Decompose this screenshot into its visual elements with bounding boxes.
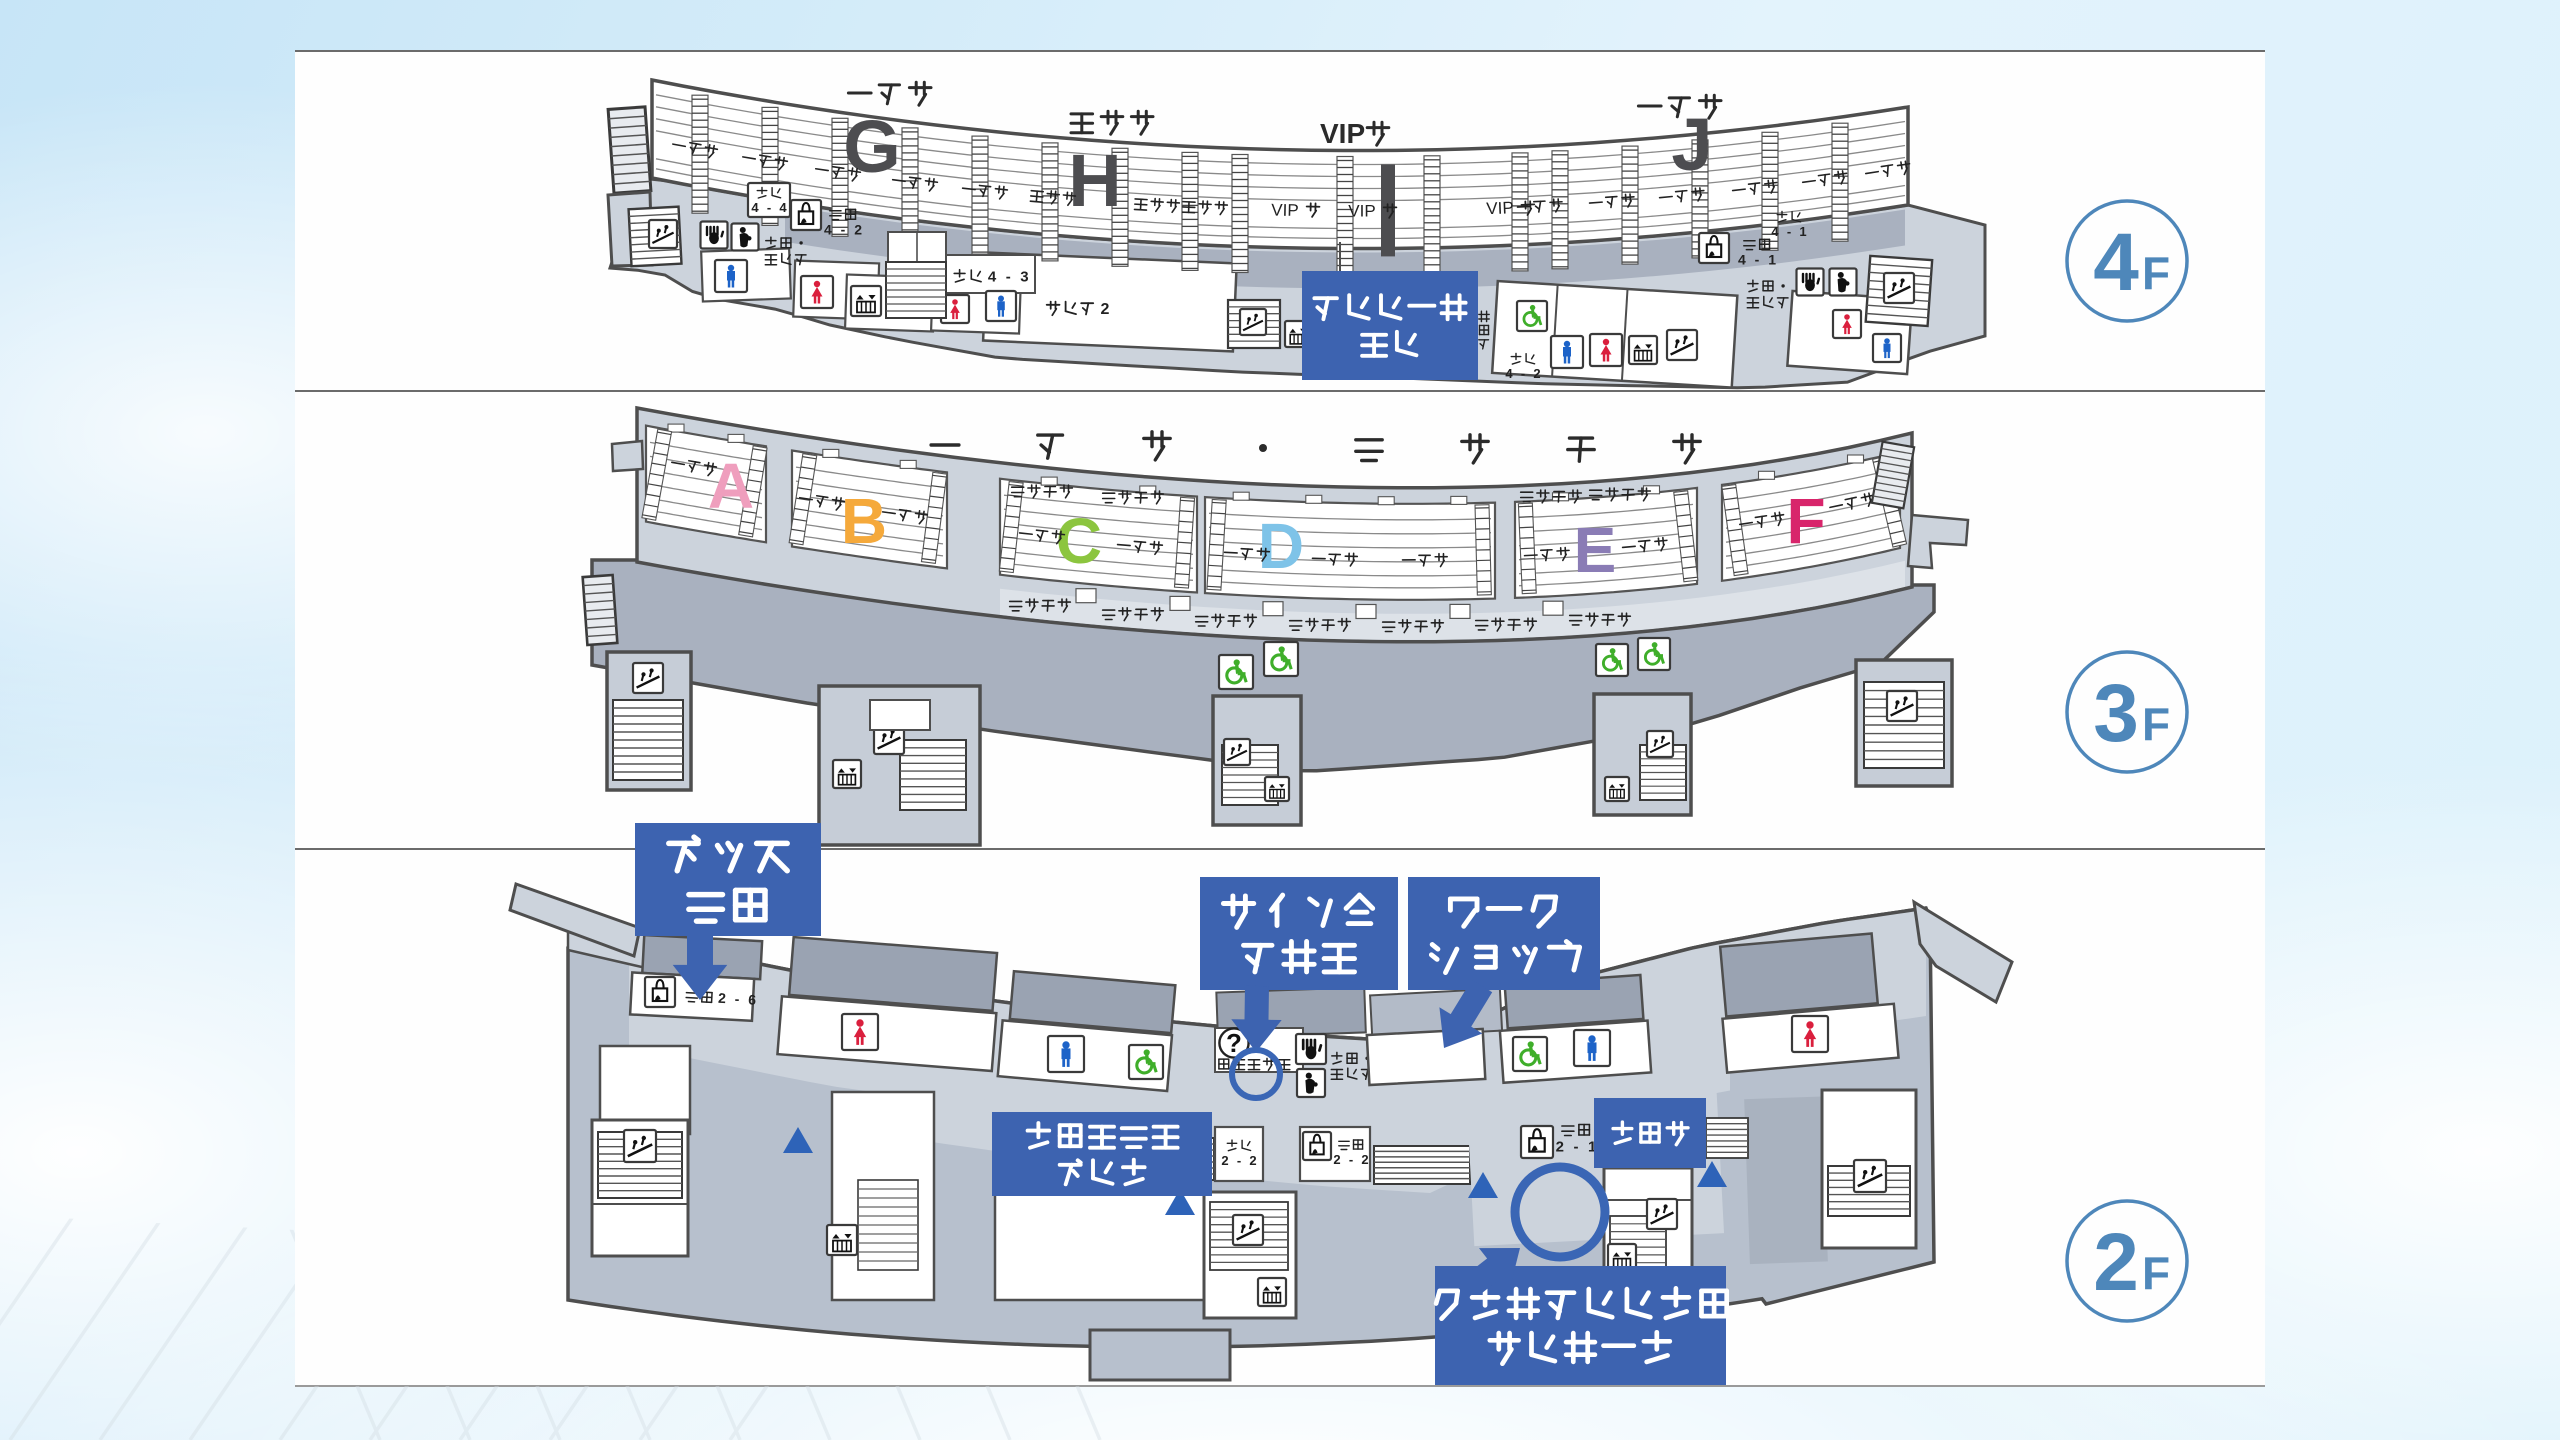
- svg-text:VIP: VIP: [1320, 118, 1365, 149]
- svg-text:VIP: VIP: [1271, 200, 1299, 220]
- svg-text:F: F: [1786, 485, 1825, 557]
- svg-text:F: F: [2142, 1247, 2170, 1299]
- svg-text:1: 1: [1799, 224, 1806, 239]
- svg-text:D: D: [1258, 510, 1304, 582]
- svg-text:C: C: [1056, 505, 1102, 577]
- svg-text:4: 4: [779, 200, 787, 215]
- svg-text:-: -: [1787, 224, 1791, 239]
- svg-text:-: -: [1574, 1139, 1579, 1156]
- svg-text:4: 4: [824, 222, 832, 238]
- svg-text:2: 2: [1100, 301, 1109, 318]
- svg-text:-: -: [1006, 268, 1011, 285]
- svg-text:F: F: [2142, 247, 2170, 299]
- svg-text:2: 2: [1361, 1152, 1368, 1167]
- svg-text:2: 2: [1556, 1139, 1564, 1156]
- svg-text:E: E: [1574, 514, 1617, 586]
- svg-text:2: 2: [718, 990, 727, 1006]
- svg-text:2: 2: [2093, 1217, 2139, 1308]
- svg-text:VIP: VIP: [1486, 198, 1514, 218]
- svg-text:4: 4: [751, 200, 759, 215]
- svg-text:4: 4: [1771, 224, 1779, 239]
- svg-text:1: 1: [1768, 252, 1776, 268]
- svg-text:B: B: [841, 485, 887, 557]
- svg-text:4: 4: [2093, 217, 2139, 308]
- svg-text:VIP: VIP: [1348, 202, 1375, 221]
- svg-text:-: -: [1349, 1152, 1353, 1167]
- svg-text:2: 2: [1333, 1152, 1340, 1167]
- svg-text:2: 2: [1221, 1153, 1228, 1168]
- svg-text:-: -: [767, 200, 771, 215]
- svg-text:-: -: [1521, 366, 1525, 381]
- svg-text:A: A: [708, 450, 754, 522]
- svg-text:6: 6: [748, 991, 757, 1007]
- svg-text:4: 4: [988, 268, 997, 285]
- svg-text:-: -: [841, 222, 846, 238]
- svg-text:4: 4: [1505, 366, 1513, 381]
- svg-text:H: H: [1068, 139, 1121, 222]
- svg-text:3: 3: [2093, 668, 2139, 759]
- svg-text:-: -: [1237, 1153, 1241, 1168]
- svg-text:2: 2: [1249, 1153, 1256, 1168]
- svg-text:4: 4: [1738, 252, 1746, 268]
- svg-text:F: F: [2142, 698, 2170, 750]
- svg-text:-: -: [1755, 252, 1760, 268]
- svg-text:3: 3: [1020, 268, 1028, 285]
- svg-text:2: 2: [854, 222, 862, 238]
- svg-text:2: 2: [1533, 366, 1540, 381]
